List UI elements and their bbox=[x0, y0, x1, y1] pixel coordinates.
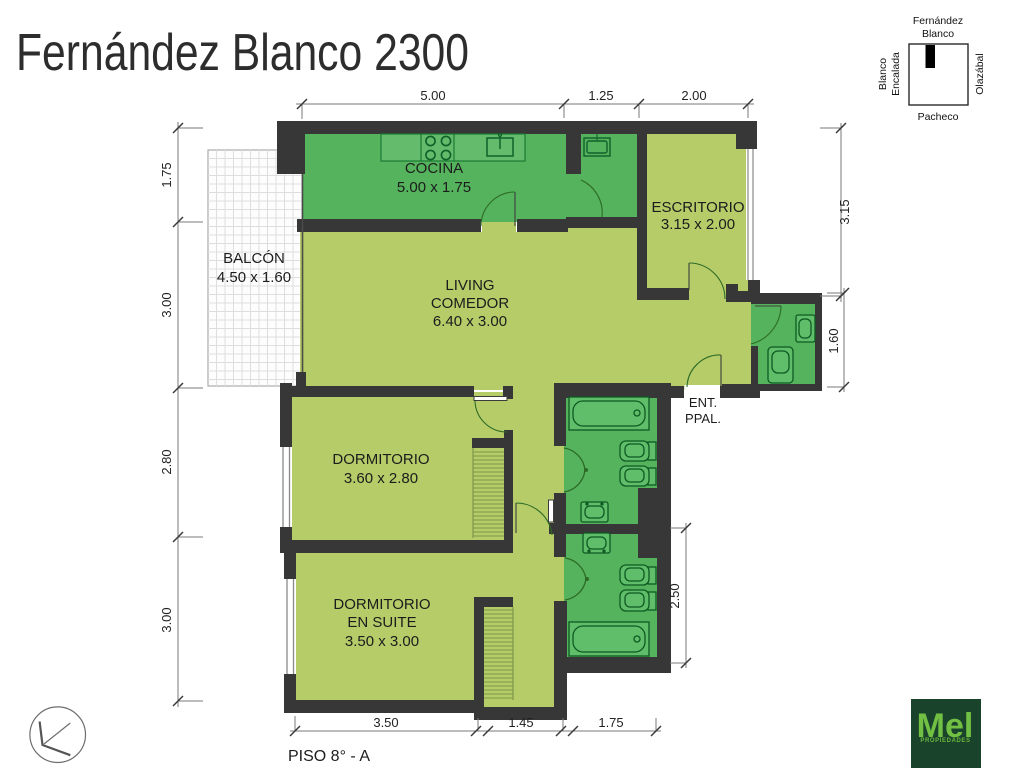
svg-text:6.40 x 3.00: 6.40 x 3.00 bbox=[433, 313, 507, 330]
svg-text:3.15 x 2.00: 3.15 x 2.00 bbox=[661, 216, 735, 233]
svg-text:3.00: 3.00 bbox=[159, 607, 174, 632]
svg-text:Fernández Blanco 2300: Fernández Blanco 2300 bbox=[16, 24, 469, 82]
svg-text:LIVING: LIVING bbox=[445, 277, 494, 294]
svg-text:PISO 8° - A: PISO 8° - A bbox=[288, 748, 370, 765]
svg-text:2.80: 2.80 bbox=[159, 449, 174, 474]
svg-text:Fernández: Fernández bbox=[913, 15, 963, 27]
svg-text:1.60: 1.60 bbox=[826, 328, 841, 353]
svg-text:4.50 x 1.60: 4.50 x 1.60 bbox=[217, 269, 291, 286]
svg-text:3.15: 3.15 bbox=[837, 199, 852, 224]
svg-text:Blanco: Blanco bbox=[922, 28, 954, 40]
svg-text:1.75: 1.75 bbox=[598, 715, 623, 730]
svg-text:Pacheco: Pacheco bbox=[918, 111, 959, 123]
svg-text:3.50 x 3.00: 3.50 x 3.00 bbox=[345, 633, 419, 650]
svg-text:3.50: 3.50 bbox=[373, 715, 398, 730]
svg-text:5.00 x 1.75: 5.00 x 1.75 bbox=[397, 179, 471, 196]
svg-text:1.45: 1.45 bbox=[508, 715, 533, 730]
svg-text:1.25: 1.25 bbox=[588, 88, 613, 103]
svg-text:DORMITORIO: DORMITORIO bbox=[332, 451, 429, 468]
svg-text:Encalada: Encalada bbox=[890, 52, 902, 96]
svg-text:1.75: 1.75 bbox=[159, 162, 174, 187]
svg-text:PPAL.: PPAL. bbox=[685, 411, 721, 426]
svg-text:COMEDOR: COMEDOR bbox=[431, 295, 510, 312]
svg-text:EN SUITE: EN SUITE bbox=[347, 614, 416, 631]
svg-text:3.60 x 2.80: 3.60 x 2.80 bbox=[344, 470, 418, 487]
svg-text:5.00: 5.00 bbox=[420, 88, 445, 103]
svg-text:DORMITORIO: DORMITORIO bbox=[333, 596, 430, 613]
svg-text:3.00: 3.00 bbox=[159, 292, 174, 317]
svg-text:ESCRITORIO: ESCRITORIO bbox=[651, 199, 744, 216]
svg-text:COCINA: COCINA bbox=[405, 160, 463, 177]
svg-text:2.50: 2.50 bbox=[667, 583, 682, 608]
svg-text:ENT.: ENT. bbox=[689, 395, 717, 410]
svg-text:BALCÓN: BALCÓN bbox=[223, 250, 285, 267]
svg-text:PROPIEDADES: PROPIEDADES bbox=[920, 738, 970, 744]
svg-text:Blanco: Blanco bbox=[877, 58, 889, 90]
svg-text:Olazábal: Olazábal bbox=[974, 53, 986, 94]
svg-text:2.00: 2.00 bbox=[681, 88, 706, 103]
